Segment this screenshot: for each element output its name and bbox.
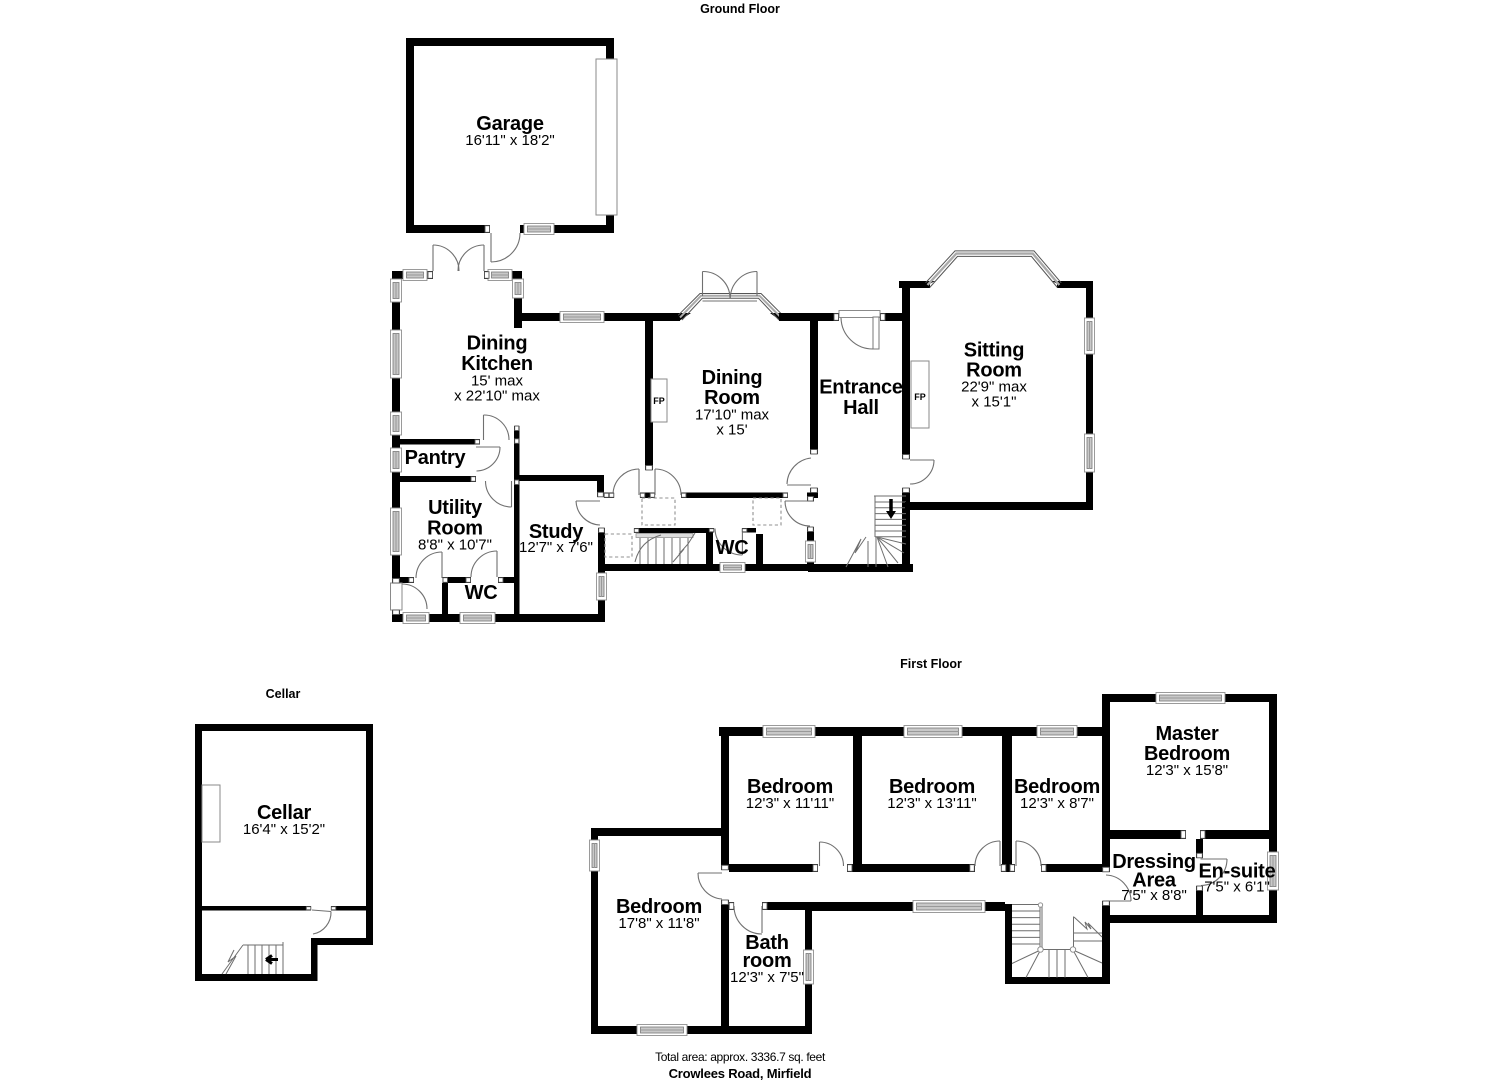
svg-text:Master: Master <box>1156 723 1219 745</box>
svg-text:WC: WC <box>465 582 498 604</box>
svg-text:16'11" x 18'2": 16'11" x 18'2" <box>465 132 555 149</box>
svg-text:x 22'10" max: x 22'10" max <box>454 388 540 405</box>
svg-text:16'4" x 15'2": 16'4" x 15'2" <box>243 821 325 838</box>
svg-text:FP: FP <box>914 392 926 402</box>
svg-text:x 15'1": x 15'1" <box>972 394 1017 411</box>
svg-text:WC: WC <box>716 537 749 559</box>
svg-text:Crowlees Road, Mirfield: Crowlees Road, Mirfield <box>669 1066 812 1080</box>
svg-text:12'3" x 8'7": 12'3" x 8'7" <box>1020 795 1094 812</box>
svg-text:Entrance: Entrance <box>819 377 903 399</box>
svg-text:Utility: Utility <box>428 497 483 519</box>
svg-text:Sitting: Sitting <box>964 340 1024 362</box>
svg-text:7'5" x 6'1": 7'5" x 6'1" <box>1204 879 1270 896</box>
svg-text:FP: FP <box>653 396 665 406</box>
svg-text:Pantry: Pantry <box>405 447 467 469</box>
svg-text:12'3" x 11'11": 12'3" x 11'11" <box>746 795 834 812</box>
svg-text:12'3" x 13'11": 12'3" x 13'11" <box>887 795 977 812</box>
svg-text:Ground Floor: Ground Floor <box>700 2 780 16</box>
svg-text:8'8" x 10'7": 8'8" x 10'7" <box>418 537 492 554</box>
svg-text:Dining: Dining <box>467 333 528 355</box>
svg-text:17'8" x 11'8": 17'8" x 11'8" <box>618 915 699 932</box>
svg-text:Dining: Dining <box>702 367 763 389</box>
svg-text:Cellar: Cellar <box>266 687 301 701</box>
svg-text:Hall: Hall <box>843 397 879 419</box>
svg-text:7'5" x 8'8": 7'5" x 8'8" <box>1121 887 1187 904</box>
svg-text:First Floor: First Floor <box>900 657 962 671</box>
svg-text:Total area: approx. 3336.7 sq.: Total area: approx. 3336.7 sq. feet <box>655 1050 826 1064</box>
svg-text:x 15': x 15' <box>716 422 747 439</box>
svg-text:12'3" x 15'8": 12'3" x 15'8" <box>1146 762 1228 779</box>
svg-text:12'3" x 7'5": 12'3" x 7'5" <box>730 969 804 986</box>
svg-text:12'7" x 7'6": 12'7" x 7'6" <box>519 539 593 556</box>
